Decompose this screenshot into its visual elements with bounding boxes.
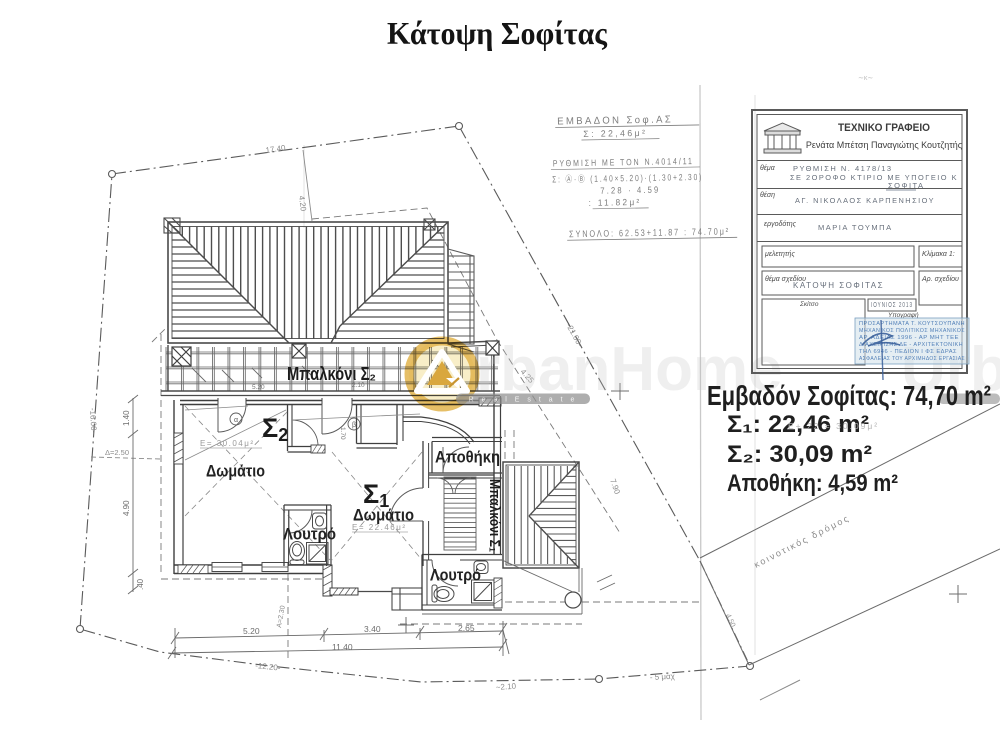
- svg-text:Μπαλκόνι Σ₂: Μπαλκόνι Σ₂: [287, 364, 376, 384]
- svg-text:Δ=2.50: Δ=2.50: [105, 448, 129, 457]
- svg-text:ΚΑΤΟΨΗ ΣΟΦΙΤΑΣ: ΚΑΤΟΨΗ ΣΟΦΙΤΑΣ: [793, 281, 884, 290]
- svg-text:ΡΥΘΜΙΣΗ Ν. 4178/13: ΡΥΘΜΙΣΗ Ν. 4178/13: [793, 164, 893, 173]
- svg-text:- 5 μαχ: - 5 μαχ: [650, 672, 676, 682]
- svg-text:εργοδότης: εργοδότης: [764, 220, 797, 228]
- svg-text:ΠΡΟΣΑΡΤΗΜΑΤΑ Τ. ΚΟΥΤΣΟΥΠΑΝΗ: ΠΡΟΣΑΡΤΗΜΑΤΑ Τ. ΚΟΥΤΣΟΥΠΑΝΗ: [859, 321, 965, 327]
- svg-text:α: α: [234, 417, 238, 424]
- svg-text:: 11.82μ²: : 11.82μ²: [588, 197, 641, 208]
- svg-text:Αποθήκη: 4,59 m²: Αποθήκη: 4,59 m²: [727, 470, 898, 497]
- svg-text:Εμβαδόν Σοφίτας: 74,70 m²: Εμβαδόν Σοφίτας: 74,70 m²: [707, 380, 991, 411]
- svg-text:Κλίμακα 1:: Κλίμακα 1:: [922, 250, 955, 258]
- svg-text:Κάτοψη Σοφίτας: Κάτοψη Σοφίτας: [387, 15, 607, 51]
- svg-text:θέμα: θέμα: [760, 164, 776, 172]
- svg-text:ΑΣΦΑΛΕΙΑΣ ΤΟΥ ΑΡΧΙΜΗΔΟΣ ΕΡΓΑΣΙ: ΑΣΦΑΛΕΙΑΣ ΤΟΥ ΑΡΧΙΜΗΔΟΣ ΕΡΓΑΣΙΑΣ: [859, 356, 965, 362]
- svg-text:1.40: 1.40: [122, 410, 131, 426]
- svg-text:Σ: 22,46μ²: Σ: 22,46μ²: [583, 128, 647, 139]
- svg-text:ΤΕΧΝΙΚΟ ΓΡΑΦΕΙΟ: ΤΕΧΝΙΚΟ ΓΡΑΦΕΙΟ: [838, 122, 930, 134]
- svg-text:ΙΟΥΝΙΟΣ 2013: ΙΟΥΝΙΟΣ 2013: [871, 302, 913, 309]
- svg-text:3.40: 3.40: [364, 624, 381, 634]
- svg-text:ΤΗΛ 6946 - ΠΕΔΙΟΝ Ι ΦΣ ΕΔΡΑΣ: ΤΗΛ 6946 - ΠΕΔΙΟΝ Ι ΦΣ ΕΔΡΑΣ: [859, 349, 957, 355]
- svg-text:R e a l E s t a t e: R e a l E s t a t e: [469, 397, 578, 404]
- svg-text:4.90: 4.90: [122, 500, 131, 516]
- svg-text:Ρενάτα Μπέτση Παναγιώτης Κουτ: Ρενάτα Μπέτση Παναγιώτης Κουτζητής: [806, 140, 963, 150]
- svg-text:θέση: θέση: [760, 191, 775, 199]
- svg-text:ΜΑΡΙΑ ΤΟΥΜΠΑ: ΜΑΡΙΑ ΤΟΥΜΠΑ: [818, 223, 893, 232]
- svg-text:Ε+ 22 = 30.09μ²: Ε+ 22 = 30.09μ²: [788, 421, 879, 431]
- svg-text:Ε= 30.04μ²: Ε= 30.04μ²: [200, 439, 255, 448]
- svg-text:ΜΗΧΑΝΙΚΟΣ ΠΟΛΙΤΙΚΟΣ ΜΗΧΑΝΙΚΟΣ: ΜΗΧΑΝΙΚΟΣ ΠΟΛΙΤΙΚΟΣ ΜΗΧΑΝΙΚΟΣ: [859, 328, 965, 334]
- svg-text:Σ₂: 30,09 m²: Σ₂: 30,09 m²: [727, 441, 872, 468]
- svg-text:Δωμάτιο: Δωμάτιο: [353, 507, 414, 525]
- svg-text:.40: .40: [136, 578, 145, 590]
- svg-text:Αρ. σχεδίου: Αρ. σχεδίου: [921, 275, 959, 283]
- svg-text:Μπαλκόνι Σ₁: Μπαλκόνι Σ₁: [486, 479, 503, 552]
- svg-text:Λουτρό: Λουτρό: [430, 567, 481, 585]
- svg-text:~2.10: ~2.10: [496, 682, 517, 692]
- svg-text:-16.00-: -16.00-: [88, 408, 98, 434]
- svg-text:Αποθήκη: Αποθήκη: [435, 449, 500, 467]
- svg-text:11.40: 11.40: [332, 642, 353, 652]
- svg-text:Σκίτσο: Σκίτσο: [799, 300, 819, 308]
- svg-text:1.70: 1.70: [339, 427, 346, 440]
- svg-text:μελετητής: μελετητής: [764, 251, 795, 258]
- svg-text:Λουτρό: Λουτρό: [283, 526, 336, 544]
- svg-text:∼κ∼: ∼κ∼: [858, 75, 873, 82]
- svg-text:β: β: [352, 422, 356, 429]
- svg-text:ΣΟΦΙΤΑ: ΣΟΦΙΤΑ: [888, 181, 925, 190]
- svg-text:2.65: 2.65: [458, 623, 475, 633]
- svg-text:7.28 · 4.59: 7.28 · 4.59: [600, 185, 660, 196]
- svg-text:5.20: 5.20: [252, 384, 265, 391]
- svg-text:ΣΕ 2ΟΡΟΦΟ ΚΤΙΡΙΟ ΜΕ ΥΠΟΓΕΙΟ: ΣΕ 2ΟΡΟΦΟ ΚΤΙΡΙΟ ΜΕ ΥΠΟΓΕΙΟ Κ: [790, 173, 958, 182]
- svg-text:ΑΓ. ΝΙΚΟΛΑΟΣ ΚΑΡΠΕΝΗΣΙΟΥ: ΑΓ. ΝΙΚΟΛΑΟΣ ΚΑΡΠΕΝΗΣΙΟΥ: [795, 196, 935, 205]
- svg-text:5.20: 5.20: [243, 626, 260, 636]
- svg-text:Δωμάτιο: Δωμάτιο: [206, 463, 265, 481]
